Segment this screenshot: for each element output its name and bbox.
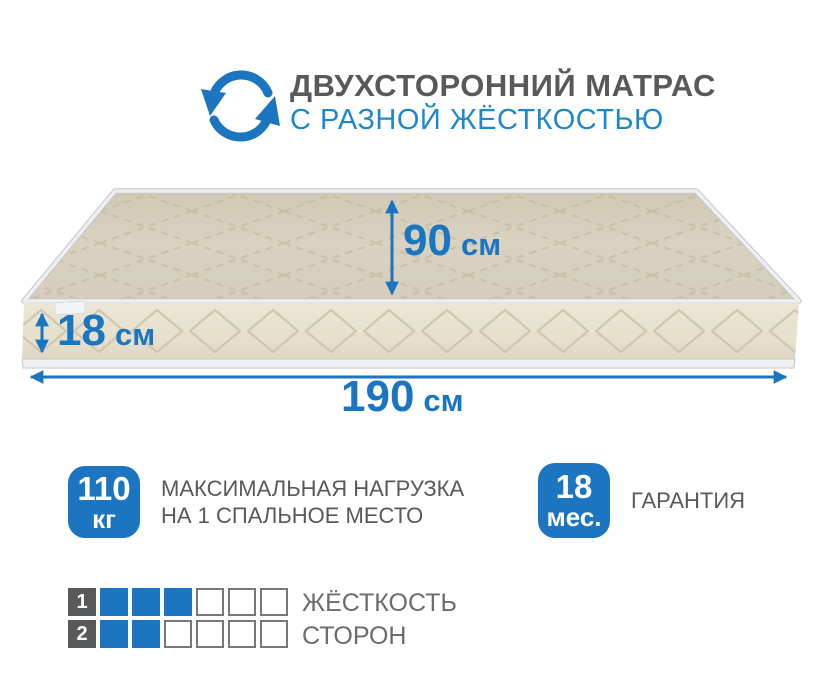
warranty-label-line1: ГАРАНТИЯ xyxy=(631,487,745,514)
max-load-badge: 110 кг xyxy=(68,466,140,538)
firmness-cell-filled xyxy=(164,588,192,616)
firmness-cell-empty xyxy=(196,588,224,616)
dimension-length-unit: см xyxy=(423,383,463,418)
dimension-label-width: 90см xyxy=(403,216,501,266)
firmness-row: 1 xyxy=(68,588,292,616)
mattress-illustration xyxy=(0,0,816,430)
firmness-label-line1: ЖЁСТКОСТЬ xyxy=(302,587,457,620)
max-load-label-line1: МАКСИМАЛЬНАЯ НАГРУЗКА xyxy=(161,475,464,502)
firmness-cell-filled xyxy=(100,588,128,616)
max-load-value: 110 xyxy=(77,472,130,506)
firmness-cell-empty xyxy=(228,620,256,648)
firmness-cell-filled xyxy=(132,620,160,648)
firmness-cells xyxy=(100,620,292,648)
mattress-bottom-piping xyxy=(22,359,795,368)
firmness-scale-label: ЖЁСТКОСТЬ СТОРОН xyxy=(302,587,457,653)
firmness-cell-empty xyxy=(164,620,192,648)
warranty-badge: 18 мес. xyxy=(538,463,610,538)
firmness-cell-empty xyxy=(260,620,288,648)
feature-max-load: 110 кг МАКСИМАЛЬНАЯ НАГРУЗКА НА 1 СПАЛЬН… xyxy=(68,466,464,538)
firmness-cell-empty xyxy=(228,588,256,616)
max-load-unit: кг xyxy=(92,506,116,533)
max-load-label-line2: НА 1 СПАЛЬНОЕ МЕСТО xyxy=(161,502,464,529)
firmness-cells xyxy=(100,588,292,616)
dimension-thickness-unit: см xyxy=(115,317,155,352)
firmness-cell-empty xyxy=(260,588,288,616)
dimension-width-unit: см xyxy=(461,227,501,262)
warranty-value: 18 xyxy=(556,470,593,504)
max-load-label: МАКСИМАЛЬНАЯ НАГРУЗКА НА 1 СПАЛЬНОЕ МЕСТ… xyxy=(161,475,464,529)
dimension-label-length: 190см xyxy=(341,372,464,422)
firmness-cell-filled xyxy=(132,588,160,616)
firmness-row: 2 xyxy=(68,620,292,648)
dimension-label-thickness: 18см xyxy=(57,306,155,356)
firmness-scale: 1 2 xyxy=(68,588,292,652)
warranty-label: ГАРАНТИЯ xyxy=(631,487,745,514)
feature-warranty: 18 мес. ГАРАНТИЯ xyxy=(538,463,745,538)
mattress-infographic: ДВУХСТОРОННИЙ МАТРАС С РАЗНОЙ ЖЁСТКОСТЬЮ xyxy=(0,0,816,700)
dimension-length-value: 190 xyxy=(341,372,414,421)
dimension-width-value: 90 xyxy=(403,216,452,265)
dimension-thickness-value: 18 xyxy=(57,306,106,355)
firmness-cell-filled xyxy=(100,620,128,648)
firmness-side-number: 2 xyxy=(68,620,96,648)
warranty-unit: мес. xyxy=(546,504,601,531)
firmness-cell-empty xyxy=(196,620,224,648)
firmness-side-number: 1 xyxy=(68,588,96,616)
firmness-label-line2: СТОРОН xyxy=(302,620,457,653)
